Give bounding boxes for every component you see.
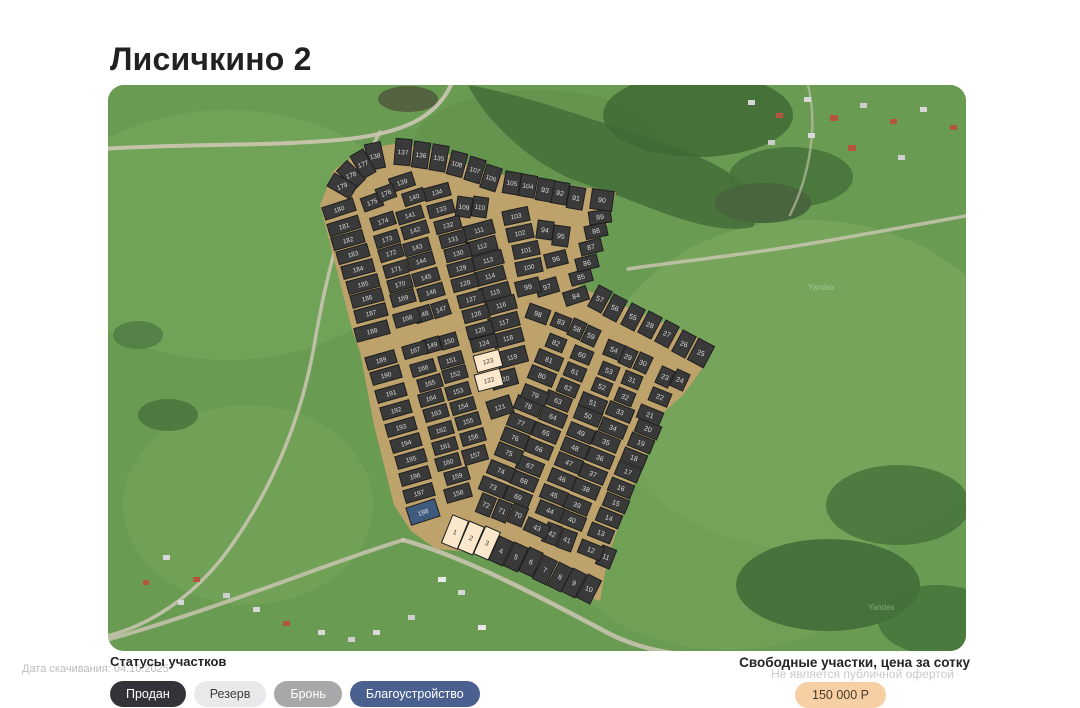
plot-number: 95 [557,233,566,241]
price-disclaimer: Не является публичной офертой [771,667,954,681]
plot-110[interactable]: 110 [471,196,489,218]
plot-90[interactable]: 90 [590,189,615,212]
page-title: Лисичкино 2 [110,41,312,78]
plot-109[interactable]: 109 [455,196,473,218]
price-badge: 150 000 Р [795,682,886,708]
plot-137[interactable]: 137 [394,138,412,165]
map-watermark: Yandex [808,283,835,292]
plot-number: 110 [474,204,486,212]
plot-number: 92 [555,190,564,198]
plot-number: 91 [571,195,580,203]
legend-pill-hold[interactable]: Бронь [274,681,342,707]
plot-number: 94 [541,227,550,235]
plot-number: 90 [598,197,607,205]
status-legend: ПроданРезервБроньБлагоустройство [110,681,480,707]
plot-number: 137 [397,149,409,157]
pond [378,86,438,112]
plot-number: 93 [540,187,549,195]
legend-pill-sold[interactable]: Продан [110,681,186,707]
map-canvas[interactable]: Yandex Yandex 45678910111213141516171819… [108,85,966,651]
plot-105[interactable]: 105 [502,171,522,195]
legend-pill-improvement[interactable]: Благоустройство [350,681,480,707]
legend-title: Статусы участков [110,654,226,669]
plot-95[interactable]: 95 [552,225,571,247]
plot-94[interactable]: 94 [536,220,554,240]
plot-136[interactable]: 136 [411,141,430,169]
plot-number: 89 [596,214,605,222]
plot-93[interactable]: 93 [535,178,555,202]
legend-pill-reserve[interactable]: Резерв [194,681,267,707]
site-map[interactable]: Yandex Yandex 45678910111213141516171819… [108,85,966,651]
map-watermark: Yandex [868,603,895,612]
